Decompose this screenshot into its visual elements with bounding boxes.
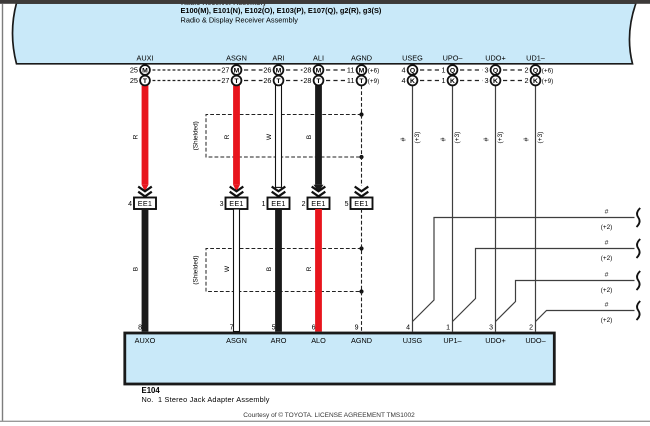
svg-text:AUXO: AUXO bbox=[135, 336, 156, 345]
svg-text:K: K bbox=[493, 78, 498, 85]
svg-text:3: 3 bbox=[220, 201, 224, 208]
svg-text:UDO–: UDO– bbox=[525, 336, 546, 345]
svg-text:1: 1 bbox=[262, 201, 266, 208]
svg-text:#: # bbox=[484, 137, 491, 141]
svg-text:(+6): (+6) bbox=[542, 68, 553, 75]
svg-text:UDO+: UDO+ bbox=[485, 53, 505, 62]
svg-text:#: # bbox=[524, 137, 531, 141]
svg-text:(+2): (+2) bbox=[601, 317, 613, 324]
svg-text:Q: Q bbox=[410, 67, 415, 74]
svg-text:UJSG: UJSG bbox=[403, 336, 423, 345]
svg-text:ARI: ARI bbox=[272, 53, 284, 62]
svg-text:E100(M), E101(N), E102(O), E10: E100(M), E101(N), E102(O), E103(P), E107… bbox=[181, 6, 382, 15]
svg-text:(+3): (+3) bbox=[414, 131, 421, 143]
svg-text:ASGN: ASGN bbox=[226, 53, 247, 62]
svg-text:M: M bbox=[142, 67, 148, 74]
svg-text:5: 5 bbox=[272, 325, 276, 332]
svg-text:EE1: EE1 bbox=[138, 199, 152, 208]
svg-text:4: 4 bbox=[401, 76, 405, 85]
svg-text:UPO–: UPO– bbox=[443, 53, 464, 62]
svg-text:EE1: EE1 bbox=[354, 199, 368, 208]
svg-text:M: M bbox=[234, 67, 240, 74]
svg-text:(+6): (+6) bbox=[368, 68, 379, 75]
svg-text:#: # bbox=[605, 208, 609, 215]
svg-text:M: M bbox=[276, 67, 282, 74]
svg-text:EE1: EE1 bbox=[271, 199, 285, 208]
svg-text:K: K bbox=[410, 78, 415, 85]
svg-text:(+2): (+2) bbox=[601, 224, 613, 231]
svg-text:8: 8 bbox=[138, 325, 142, 332]
svg-text:#: # bbox=[441, 137, 448, 141]
svg-text:EE1: EE1 bbox=[311, 199, 325, 208]
svg-text:EE1: EE1 bbox=[229, 199, 243, 208]
svg-text:M: M bbox=[359, 67, 365, 74]
svg-text:(+9): (+9) bbox=[542, 78, 553, 85]
svg-text:USEG: USEG bbox=[402, 53, 423, 62]
svg-text:Courtesy of © TOYOTA. LICENSE: Courtesy of © TOYOTA. LICENSE AGREEMENT … bbox=[243, 411, 415, 419]
svg-text:27: 27 bbox=[221, 66, 229, 75]
svg-text:1: 1 bbox=[441, 66, 445, 75]
svg-text:#: # bbox=[605, 271, 609, 278]
svg-text:#: # bbox=[605, 239, 609, 246]
svg-text:AGND: AGND bbox=[351, 336, 372, 345]
svg-text:9: 9 bbox=[355, 325, 359, 332]
svg-text:ALI: ALI bbox=[313, 53, 324, 62]
svg-text:R: R bbox=[224, 134, 231, 139]
svg-text:25: 25 bbox=[130, 76, 138, 85]
svg-text:26: 26 bbox=[263, 66, 271, 75]
svg-text:5: 5 bbox=[345, 201, 349, 208]
svg-text:Q: Q bbox=[533, 67, 538, 74]
svg-text:AGND: AGND bbox=[351, 53, 372, 62]
svg-text:28: 28 bbox=[303, 76, 311, 85]
svg-text:11: 11 bbox=[347, 66, 355, 75]
svg-text:1: 1 bbox=[441, 76, 445, 85]
svg-text:3: 3 bbox=[489, 325, 493, 332]
svg-text:ALO: ALO bbox=[311, 336, 326, 345]
svg-text:(+9): (+9) bbox=[368, 78, 379, 85]
svg-text:#: # bbox=[401, 137, 408, 141]
svg-text:(Shielded): (Shielded) bbox=[193, 121, 200, 150]
svg-text:(Shielded): (Shielded) bbox=[193, 255, 200, 284]
svg-text:3: 3 bbox=[484, 76, 488, 85]
svg-text:4: 4 bbox=[128, 201, 132, 208]
svg-text:E104: E104 bbox=[142, 386, 161, 395]
svg-text:4: 4 bbox=[406, 325, 410, 332]
svg-text:#: # bbox=[605, 301, 609, 308]
svg-text:Radio & Display Receiver Assem: Radio & Display Receiver Assembly bbox=[181, 15, 299, 24]
svg-text:25: 25 bbox=[130, 66, 138, 75]
svg-text:(+3): (+3) bbox=[497, 131, 504, 143]
svg-text:11: 11 bbox=[347, 76, 355, 85]
svg-text:2: 2 bbox=[524, 66, 528, 75]
svg-text:UDO+: UDO+ bbox=[485, 336, 505, 345]
svg-text:ARO: ARO bbox=[271, 336, 287, 345]
svg-text:(+2): (+2) bbox=[601, 287, 613, 294]
svg-text:K: K bbox=[450, 78, 455, 85]
svg-text:26: 26 bbox=[263, 76, 271, 85]
svg-text:B: B bbox=[266, 266, 273, 271]
svg-text:ASGN: ASGN bbox=[226, 336, 247, 345]
svg-text:6: 6 bbox=[312, 325, 316, 332]
svg-text:7: 7 bbox=[230, 325, 234, 332]
svg-text:K: K bbox=[533, 78, 538, 85]
svg-text:M: M bbox=[316, 67, 322, 74]
svg-text:28: 28 bbox=[303, 66, 311, 75]
svg-text:2: 2 bbox=[302, 201, 306, 208]
svg-text:4: 4 bbox=[401, 66, 405, 75]
svg-text:R: R bbox=[306, 266, 313, 271]
svg-text:UP1–: UP1– bbox=[443, 336, 462, 345]
svg-text:1: 1 bbox=[446, 325, 450, 332]
svg-text:3: 3 bbox=[484, 66, 488, 75]
svg-text:2: 2 bbox=[529, 325, 533, 332]
svg-text:2: 2 bbox=[524, 76, 528, 85]
svg-text:W: W bbox=[266, 133, 273, 140]
svg-text:AUXI: AUXI bbox=[136, 53, 153, 62]
svg-text:W: W bbox=[224, 265, 231, 272]
svg-text:Q: Q bbox=[493, 67, 498, 74]
svg-text:27: 27 bbox=[221, 76, 229, 85]
svg-text:(+2): (+2) bbox=[601, 255, 613, 262]
svg-text:B: B bbox=[133, 266, 140, 271]
svg-text:Q: Q bbox=[450, 67, 455, 74]
svg-text:(+3): (+3) bbox=[454, 131, 461, 143]
svg-text:(+3): (+3) bbox=[537, 131, 544, 143]
svg-text:R: R bbox=[133, 134, 140, 139]
svg-text:UD1–: UD1– bbox=[526, 53, 546, 62]
svg-text:B: B bbox=[306, 134, 313, 139]
svg-text:No. 1 Stereo Jack Adapter Ass: No. 1 Stereo Jack Adapter Assembly bbox=[142, 395, 270, 404]
